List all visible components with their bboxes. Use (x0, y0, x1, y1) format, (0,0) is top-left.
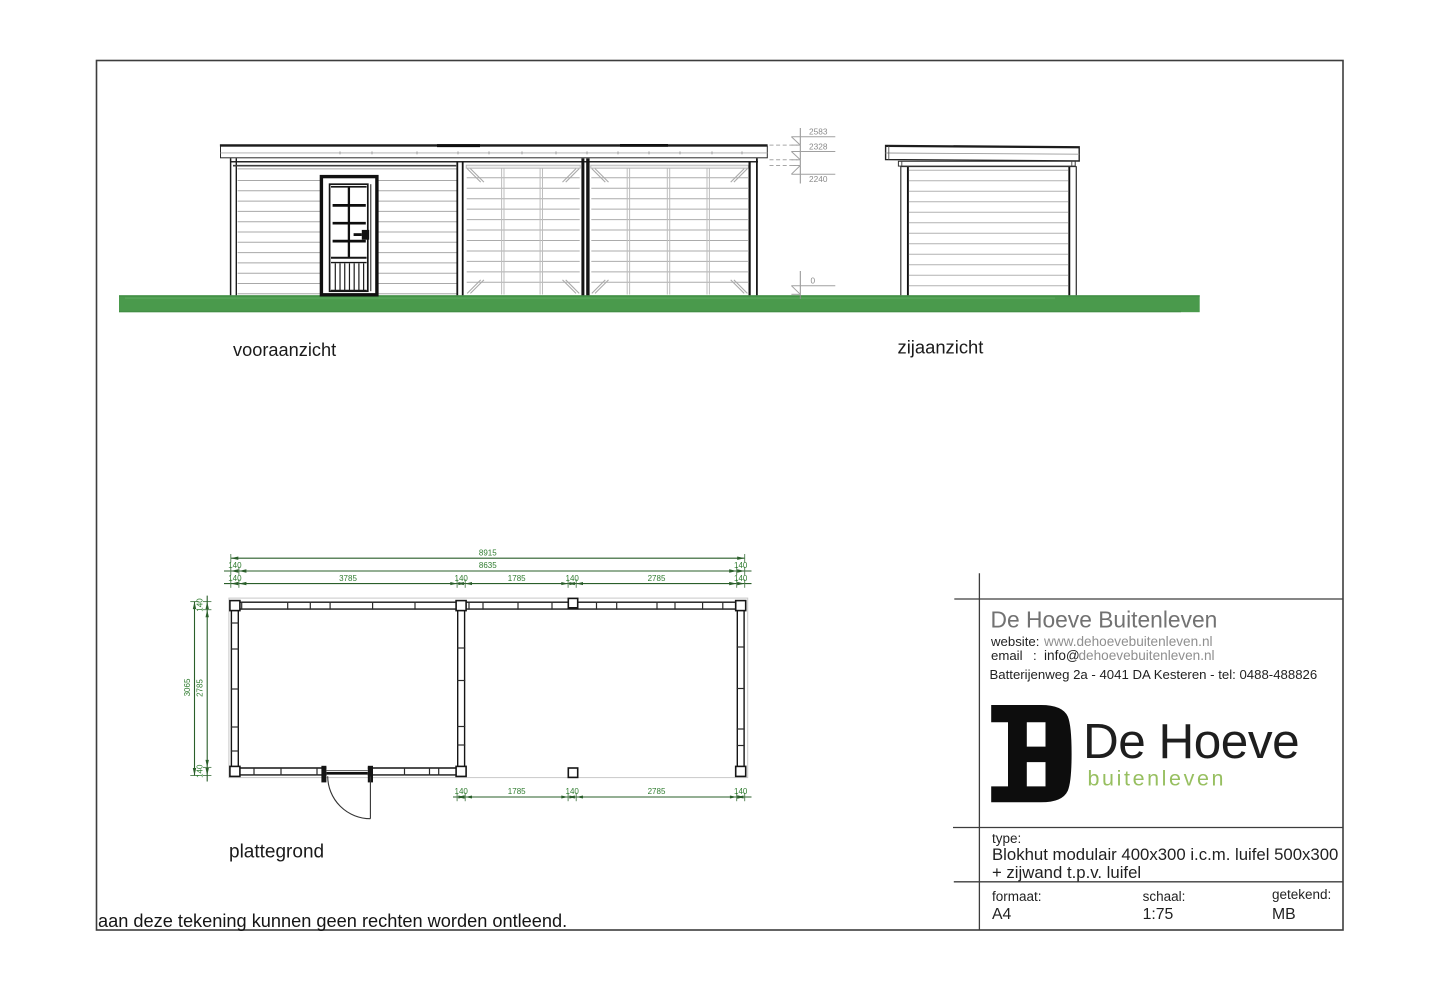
svg-text:140: 140 (734, 574, 748, 583)
svg-text:website:: website: (990, 634, 1039, 649)
svg-text:type:: type: (992, 831, 1021, 846)
svg-text:1785: 1785 (508, 574, 526, 583)
svg-text:+ zijwand t.p.v. luifel: + zijwand t.p.v. luifel (992, 863, 1141, 882)
svg-text:140: 140 (566, 787, 580, 796)
svg-text:140: 140 (228, 561, 242, 570)
svg-text:De Hoeve Buitenleven: De Hoeve Buitenleven (991, 606, 1218, 632)
svg-text:2785: 2785 (648, 574, 666, 583)
svg-text:2785: 2785 (648, 787, 666, 796)
svg-text:140: 140 (455, 787, 469, 796)
svg-text:formaat:: formaat: (992, 889, 1042, 904)
svg-text:2328: 2328 (809, 141, 828, 151)
svg-text:8635: 8635 (479, 561, 497, 570)
svg-text:140: 140 (734, 561, 748, 570)
svg-text:Blokhut modulair 400x300 i.c.m: Blokhut modulair 400x300 i.c.m. luifel 5… (992, 845, 1338, 864)
svg-text::: : (1033, 648, 1037, 663)
svg-text:2240: 2240 (809, 174, 828, 184)
svg-text:140: 140 (196, 598, 205, 612)
svg-text:1785: 1785 (508, 787, 526, 796)
svg-text:dehoevebuitenleven.nl: dehoevebuitenleven.nl (1079, 648, 1215, 663)
svg-text:140: 140 (196, 764, 205, 778)
svg-text:0: 0 (811, 276, 816, 286)
svg-text:www.dehoevebuitenleven.nl: www.dehoevebuitenleven.nl (1043, 634, 1213, 649)
svg-text:140: 140 (566, 574, 580, 583)
svg-text:schaal:: schaal: (1143, 889, 1186, 904)
svg-text:3065: 3065 (183, 678, 192, 696)
svg-text:8915: 8915 (479, 548, 497, 557)
svg-text:plattegrond: plattegrond (229, 842, 324, 863)
svg-text:2785: 2785 (196, 679, 205, 697)
svg-text:3785: 3785 (339, 574, 357, 583)
svg-text:140: 140 (228, 574, 242, 583)
svg-text:2583: 2583 (809, 127, 828, 137)
svg-text:A4: A4 (992, 906, 1012, 923)
svg-text:1:75: 1:75 (1143, 906, 1174, 923)
svg-text:140: 140 (734, 787, 748, 796)
svg-text:info@: info@ (1044, 648, 1080, 663)
svg-text:De Hoeve: De Hoeve (1083, 714, 1299, 769)
svg-text:zijaanzicht: zijaanzicht (898, 337, 984, 358)
svg-text:Batterijenweg 2a - 4041 DA Kes: Batterijenweg 2a - 4041 DA Kesteren - te… (990, 667, 1318, 682)
svg-text:email: email (991, 648, 1023, 663)
svg-text:vooraanzicht: vooraanzicht (233, 340, 336, 360)
svg-text:buitenleven: buitenleven (1088, 767, 1227, 791)
svg-text:getekend:: getekend: (1272, 887, 1331, 902)
svg-text:140: 140 (455, 574, 469, 583)
svg-text:MB: MB (1272, 906, 1296, 923)
svg-text:aan deze tekening kunnen geen: aan deze tekening kunnen geen rechten wo… (98, 911, 567, 931)
